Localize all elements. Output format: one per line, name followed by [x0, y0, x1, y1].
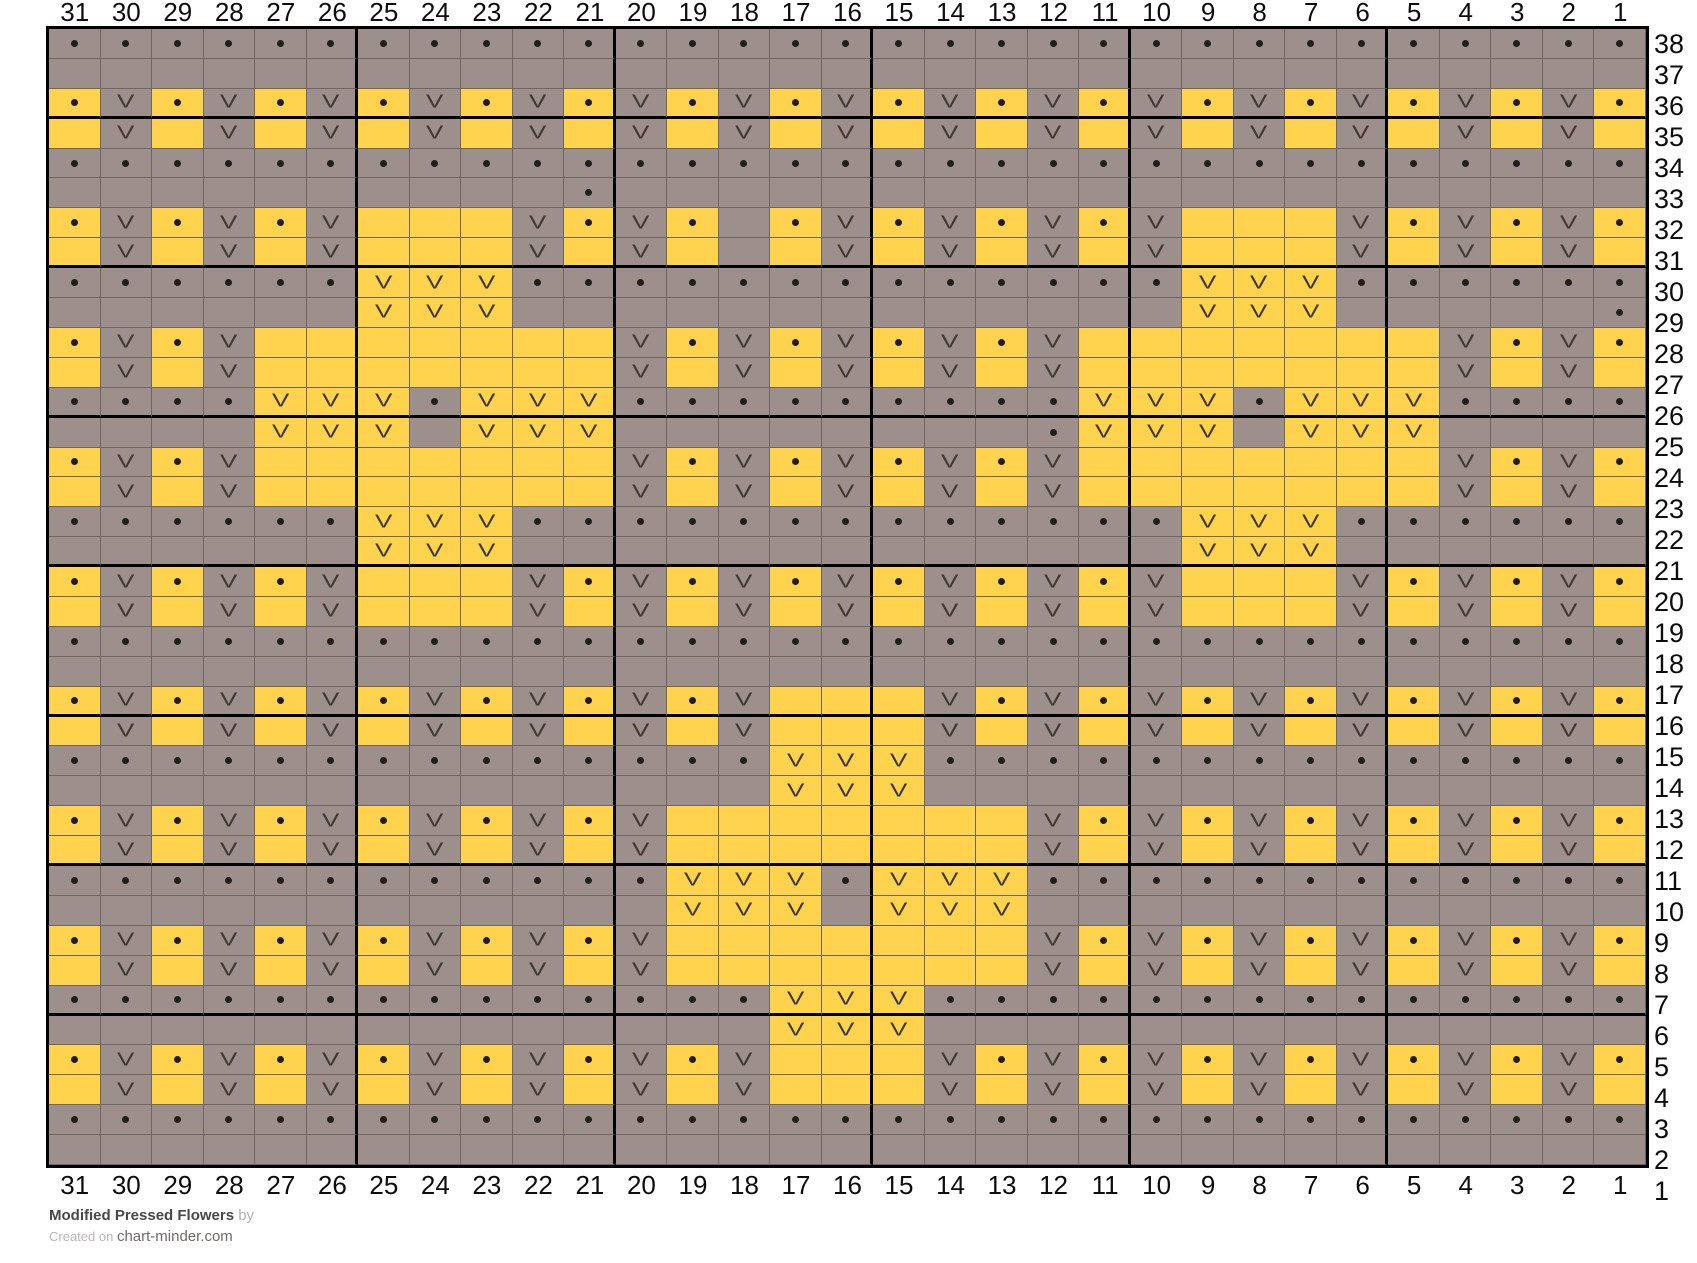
- chart-cell-c5-r35[interactable]: [1388, 119, 1440, 149]
- chart-cell-c31-r29[interactable]: [49, 298, 101, 328]
- chart-cell-c31-r5[interactable]: [49, 1016, 101, 1046]
- chart-cell-c24-r3[interactable]: V: [410, 1075, 462, 1105]
- chart-cell-c8-r2[interactable]: [1234, 1105, 1286, 1135]
- chart-cell-c23-r6[interactable]: [461, 986, 513, 1016]
- chart-cell-c16-r30[interactable]: [822, 268, 874, 298]
- chart-cell-c31-r3[interactable]: [49, 1075, 101, 1105]
- chart-cell-c23-r33[interactable]: [461, 178, 513, 208]
- chart-cell-c25-r1[interactable]: [358, 1135, 410, 1165]
- chart-cell-c21-r28[interactable]: [564, 328, 616, 358]
- chart-cell-c12-r30[interactable]: [1028, 268, 1080, 298]
- chart-cell-c22-r24[interactable]: [513, 448, 565, 478]
- chart-cell-c31-r28[interactable]: [49, 328, 101, 358]
- chart-cell-c5-r9[interactable]: [1388, 896, 1440, 926]
- chart-cell-c1-r4[interactable]: [1594, 1045, 1646, 1075]
- chart-cell-c8-r37[interactable]: [1234, 59, 1286, 89]
- chart-cell-c9-r3[interactable]: [1182, 1075, 1234, 1105]
- chart-cell-c31-r38[interactable]: [49, 29, 101, 59]
- chart-cell-c18-r26[interactable]: [719, 388, 771, 418]
- chart-cell-c27-r37[interactable]: [255, 59, 307, 89]
- chart-cell-c24-r34[interactable]: [410, 149, 462, 179]
- chart-cell-c13-r37[interactable]: [976, 59, 1028, 89]
- chart-cell-c16-r12[interactable]: [822, 806, 874, 836]
- chart-cell-c20-r18[interactable]: [616, 627, 668, 657]
- chart-cell-c22-r7[interactable]: V: [513, 956, 565, 986]
- chart-cell-c19-r5[interactable]: [667, 1016, 719, 1046]
- chart-cell-c25-r16[interactable]: [358, 687, 410, 717]
- chart-cell-c27-r18[interactable]: [255, 627, 307, 657]
- chart-cell-c19-r2[interactable]: [667, 1105, 719, 1135]
- chart-cell-c15-r31[interactable]: [873, 238, 925, 268]
- chart-cell-c21-r36[interactable]: [564, 89, 616, 119]
- chart-cell-c24-r32[interactable]: [410, 208, 462, 238]
- chart-cell-c6-r24[interactable]: [1337, 448, 1389, 478]
- chart-cell-c31-r7[interactable]: [49, 956, 101, 986]
- chart-cell-c25-r29[interactable]: V: [358, 298, 410, 328]
- chart-cell-c10-r38[interactable]: [1131, 29, 1183, 59]
- chart-cell-c8-r38[interactable]: [1234, 29, 1286, 59]
- chart-cell-c18-r31[interactable]: [719, 238, 771, 268]
- chart-cell-c15-r4[interactable]: [873, 1045, 925, 1075]
- chart-cell-c10-r25[interactable]: V: [1131, 418, 1183, 448]
- chart-cell-c11-r18[interactable]: [1079, 627, 1131, 657]
- chart-cell-c12-r29[interactable]: [1028, 298, 1080, 328]
- chart-cell-c9-r14[interactable]: [1182, 746, 1234, 776]
- chart-cell-c26-r14[interactable]: [307, 746, 359, 776]
- chart-cell-c25-r13[interactable]: [358, 776, 410, 806]
- chart-cell-c4-r35[interactable]: V: [1440, 119, 1492, 149]
- chart-cell-c7-r2[interactable]: [1285, 1105, 1337, 1135]
- chart-cell-c5-r6[interactable]: [1388, 986, 1440, 1016]
- chart-cell-c21-r6[interactable]: [564, 986, 616, 1016]
- chart-cell-c14-r22[interactable]: [925, 507, 977, 537]
- chart-cell-c12-r3[interactable]: V: [1028, 1075, 1080, 1105]
- chart-cell-c12-r16[interactable]: V: [1028, 687, 1080, 717]
- chart-cell-c26-r19[interactable]: V: [307, 597, 359, 627]
- chart-cell-c4-r37[interactable]: [1440, 59, 1492, 89]
- chart-cell-c4-r7[interactable]: V: [1440, 956, 1492, 986]
- chart-cell-c4-r26[interactable]: [1440, 388, 1492, 418]
- chart-cell-c1-r26[interactable]: [1594, 388, 1646, 418]
- chart-cell-c6-r10[interactable]: [1337, 866, 1389, 896]
- chart-cell-c30-r15[interactable]: V: [101, 717, 153, 747]
- chart-cell-c29-r33[interactable]: [152, 178, 204, 208]
- chart-cell-c15-r36[interactable]: [873, 89, 925, 119]
- chart-cell-c7-r34[interactable]: [1285, 149, 1337, 179]
- chart-cell-c30-r30[interactable]: [101, 268, 153, 298]
- chart-cell-c26-r34[interactable]: [307, 149, 359, 179]
- chart-cell-c31-r34[interactable]: [49, 149, 101, 179]
- chart-cell-c16-r26[interactable]: [822, 388, 874, 418]
- chart-cell-c9-r32[interactable]: [1182, 208, 1234, 238]
- chart-cell-c7-r19[interactable]: [1285, 597, 1337, 627]
- chart-cell-c11-r14[interactable]: [1079, 746, 1131, 776]
- chart-cell-c15-r27[interactable]: [873, 358, 925, 388]
- chart-cell-c19-r32[interactable]: [667, 208, 719, 238]
- chart-cell-c11-r8[interactable]: [1079, 926, 1131, 956]
- chart-cell-c18-r25[interactable]: [719, 418, 771, 448]
- chart-cell-c18-r28[interactable]: V: [719, 328, 771, 358]
- chart-cell-c14-r18[interactable]: [925, 627, 977, 657]
- chart-cell-c9-r31[interactable]: [1182, 238, 1234, 268]
- chart-cell-c30-r7[interactable]: V: [101, 956, 153, 986]
- chart-cell-c25-r12[interactable]: [358, 806, 410, 836]
- chart-cell-c23-r29[interactable]: V: [461, 298, 513, 328]
- chart-cell-c9-r28[interactable]: [1182, 328, 1234, 358]
- chart-cell-c14-r1[interactable]: [925, 1135, 977, 1165]
- chart-cell-c21-r26[interactable]: V: [564, 388, 616, 418]
- chart-cell-c20-r8[interactable]: V: [616, 926, 668, 956]
- chart-cell-c9-r24[interactable]: [1182, 448, 1234, 478]
- chart-cell-c27-r36[interactable]: [255, 89, 307, 119]
- chart-cell-c18-r19[interactable]: V: [719, 597, 771, 627]
- chart-cell-c6-r23[interactable]: [1337, 477, 1389, 507]
- chart-cell-c22-r17[interactable]: [513, 657, 565, 687]
- chart-cell-c12-r38[interactable]: [1028, 29, 1080, 59]
- chart-cell-c13-r21[interactable]: [976, 537, 1028, 567]
- chart-cell-c16-r28[interactable]: V: [822, 328, 874, 358]
- chart-cell-c15-r20[interactable]: [873, 567, 925, 597]
- chart-cell-c11-r13[interactable]: [1079, 776, 1131, 806]
- chart-cell-c27-r14[interactable]: [255, 746, 307, 776]
- chart-cell-c7-r4[interactable]: [1285, 1045, 1337, 1075]
- chart-cell-c28-r35[interactable]: V: [204, 119, 256, 149]
- chart-cell-c19-r18[interactable]: [667, 627, 719, 657]
- chart-cell-c2-r20[interactable]: V: [1543, 567, 1595, 597]
- chart-cell-c26-r12[interactable]: V: [307, 806, 359, 836]
- chart-cell-c7-r18[interactable]: [1285, 627, 1337, 657]
- chart-cell-c3-r6[interactable]: [1491, 986, 1543, 1016]
- chart-cell-c30-r11[interactable]: V: [101, 836, 153, 866]
- chart-cell-c18-r37[interactable]: [719, 59, 771, 89]
- chart-cell-c10-r3[interactable]: V: [1131, 1075, 1183, 1105]
- chart-cell-c12-r6[interactable]: [1028, 986, 1080, 1016]
- chart-cell-c30-r4[interactable]: V: [101, 1045, 153, 1075]
- chart-cell-c6-r21[interactable]: [1337, 537, 1389, 567]
- chart-cell-c15-r34[interactable]: [873, 149, 925, 179]
- chart-cell-c12-r28[interactable]: V: [1028, 328, 1080, 358]
- chart-cell-c2-r38[interactable]: [1543, 29, 1595, 59]
- chart-cell-c20-r14[interactable]: [616, 746, 668, 776]
- chart-cell-c22-r30[interactable]: [513, 268, 565, 298]
- chart-cell-c22-r2[interactable]: [513, 1105, 565, 1135]
- chart-cell-c7-r6[interactable]: [1285, 986, 1337, 1016]
- chart-cell-c19-r14[interactable]: [667, 746, 719, 776]
- chart-cell-c28-r4[interactable]: V: [204, 1045, 256, 1075]
- chart-cell-c18-r12[interactable]: [719, 806, 771, 836]
- chart-cell-c23-r11[interactable]: [461, 836, 513, 866]
- chart-cell-c14-r5[interactable]: [925, 1016, 977, 1046]
- chart-cell-c1-r16[interactable]: [1594, 687, 1646, 717]
- chart-cell-c11-r37[interactable]: [1079, 59, 1131, 89]
- chart-cell-c22-r37[interactable]: [513, 59, 565, 89]
- chart-cell-c29-r3[interactable]: [152, 1075, 204, 1105]
- chart-cell-c9-r8[interactable]: [1182, 926, 1234, 956]
- chart-cell-c4-r4[interactable]: V: [1440, 1045, 1492, 1075]
- chart-cell-c30-r25[interactable]: [101, 418, 153, 448]
- chart-cell-c1-r9[interactable]: [1594, 896, 1646, 926]
- chart-cell-c22-r23[interactable]: [513, 477, 565, 507]
- chart-cell-c25-r27[interactable]: [358, 358, 410, 388]
- chart-cell-c18-r11[interactable]: [719, 836, 771, 866]
- chart-cell-c29-r37[interactable]: [152, 59, 204, 89]
- chart-cell-c27-r4[interactable]: [255, 1045, 307, 1075]
- chart-cell-c11-r9[interactable]: [1079, 896, 1131, 926]
- chart-cell-c23-r2[interactable]: [461, 1105, 513, 1135]
- chart-cell-c24-r37[interactable]: [410, 59, 462, 89]
- chart-cell-c7-r25[interactable]: V: [1285, 418, 1337, 448]
- chart-cell-c1-r12[interactable]: [1594, 806, 1646, 836]
- chart-cell-c10-r22[interactable]: [1131, 507, 1183, 537]
- chart-cell-c30-r27[interactable]: V: [101, 358, 153, 388]
- chart-cell-c13-r10[interactable]: V: [976, 866, 1028, 896]
- chart-cell-c8-r19[interactable]: [1234, 597, 1286, 627]
- chart-cell-c20-r38[interactable]: [616, 29, 668, 59]
- chart-cell-c14-r26[interactable]: [925, 388, 977, 418]
- chart-cell-c8-r24[interactable]: [1234, 448, 1286, 478]
- chart-cell-c5-r18[interactable]: [1388, 627, 1440, 657]
- chart-cell-c9-r17[interactable]: [1182, 657, 1234, 687]
- chart-cell-c31-r36[interactable]: [49, 89, 101, 119]
- chart-cell-c29-r8[interactable]: [152, 926, 204, 956]
- chart-cell-c3-r8[interactable]: [1491, 926, 1543, 956]
- chart-cell-c26-r22[interactable]: [307, 507, 359, 537]
- chart-cell-c24-r7[interactable]: V: [410, 956, 462, 986]
- chart-cell-c13-r12[interactable]: [976, 806, 1028, 836]
- chart-cell-c5-r31[interactable]: [1388, 238, 1440, 268]
- chart-cell-c7-r33[interactable]: [1285, 178, 1337, 208]
- chart-cell-c28-r6[interactable]: [204, 986, 256, 1016]
- chart-cell-c16-r31[interactable]: V: [822, 238, 874, 268]
- chart-cell-c1-r35[interactable]: [1594, 119, 1646, 149]
- chart-cell-c21-r33[interactable]: [564, 178, 616, 208]
- chart-cell-c9-r7[interactable]: [1182, 956, 1234, 986]
- chart-cell-c16-r8[interactable]: [822, 926, 874, 956]
- chart-cell-c16-r3[interactable]: [822, 1075, 874, 1105]
- chart-cell-c22-r5[interactable]: [513, 1016, 565, 1046]
- chart-cell-c22-r38[interactable]: [513, 29, 565, 59]
- chart-cell-c24-r6[interactable]: [410, 986, 462, 1016]
- chart-cell-c8-r22[interactable]: V: [1234, 507, 1286, 537]
- chart-cell-c24-r14[interactable]: [410, 746, 462, 776]
- chart-cell-c18-r13[interactable]: [719, 776, 771, 806]
- chart-cell-c30-r1[interactable]: [101, 1135, 153, 1165]
- chart-cell-c13-r38[interactable]: [976, 29, 1028, 59]
- chart-cell-c12-r15[interactable]: V: [1028, 717, 1080, 747]
- chart-cell-c28-r26[interactable]: [204, 388, 256, 418]
- chart-cell-c4-r10[interactable]: [1440, 866, 1492, 896]
- chart-cell-c17-r12[interactable]: [770, 806, 822, 836]
- chart-cell-c11-r20[interactable]: [1079, 567, 1131, 597]
- chart-cell-c20-r31[interactable]: V: [616, 238, 668, 268]
- chart-cell-c12-r2[interactable]: [1028, 1105, 1080, 1135]
- chart-cell-c21-r31[interactable]: [564, 238, 616, 268]
- chart-cell-c2-r16[interactable]: V: [1543, 687, 1595, 717]
- chart-cell-c4-r8[interactable]: V: [1440, 926, 1492, 956]
- chart-cell-c12-r1[interactable]: [1028, 1135, 1080, 1165]
- chart-cell-c13-r23[interactable]: [976, 477, 1028, 507]
- chart-cell-c7-r8[interactable]: [1285, 926, 1337, 956]
- chart-cell-c28-r16[interactable]: V: [204, 687, 256, 717]
- chart-cell-c27-r6[interactable]: [255, 986, 307, 1016]
- chart-cell-c26-r3[interactable]: V: [307, 1075, 359, 1105]
- chart-cell-c11-r28[interactable]: [1079, 328, 1131, 358]
- chart-cell-c29-r29[interactable]: [152, 298, 204, 328]
- chart-cell-c19-r1[interactable]: [667, 1135, 719, 1165]
- chart-cell-c13-r8[interactable]: [976, 926, 1028, 956]
- chart-cell-c7-r15[interactable]: [1285, 717, 1337, 747]
- chart-cell-c29-r24[interactable]: [152, 448, 204, 478]
- chart-cell-c25-r15[interactable]: [358, 717, 410, 747]
- chart-cell-c31-r25[interactable]: [49, 418, 101, 448]
- chart-cell-c9-r13[interactable]: [1182, 776, 1234, 806]
- chart-cell-c8-r9[interactable]: [1234, 896, 1286, 926]
- chart-cell-c27-r25[interactable]: V: [255, 418, 307, 448]
- chart-cell-c20-r29[interactable]: [616, 298, 668, 328]
- chart-cell-c17-r7[interactable]: [770, 956, 822, 986]
- chart-cell-c1-r29[interactable]: [1594, 298, 1646, 328]
- chart-cell-c24-r33[interactable]: [410, 178, 462, 208]
- chart-cell-c18-r34[interactable]: [719, 149, 771, 179]
- chart-cell-c29-r15[interactable]: [152, 717, 204, 747]
- chart-cell-c31-r20[interactable]: [49, 567, 101, 597]
- chart-cell-c26-r11[interactable]: V: [307, 836, 359, 866]
- chart-cell-c13-r29[interactable]: [976, 298, 1028, 328]
- chart-cell-c19-r19[interactable]: [667, 597, 719, 627]
- chart-cell-c9-r26[interactable]: V: [1182, 388, 1234, 418]
- chart-cell-c21-r11[interactable]: [564, 836, 616, 866]
- chart-cell-c19-r11[interactable]: [667, 836, 719, 866]
- chart-cell-c28-r28[interactable]: V: [204, 328, 256, 358]
- chart-cell-c1-r36[interactable]: [1594, 89, 1646, 119]
- chart-cell-c26-r29[interactable]: [307, 298, 359, 328]
- chart-cell-c24-r5[interactable]: [410, 1016, 462, 1046]
- chart-cell-c14-r33[interactable]: [925, 178, 977, 208]
- chart-cell-c5-r15[interactable]: [1388, 717, 1440, 747]
- chart-cell-c26-r4[interactable]: V: [307, 1045, 359, 1075]
- chart-cell-c3-r1[interactable]: [1491, 1135, 1543, 1165]
- chart-cell-c15-r38[interactable]: [873, 29, 925, 59]
- chart-cell-c6-r4[interactable]: V: [1337, 1045, 1389, 1075]
- chart-cell-c23-r31[interactable]: [461, 238, 513, 268]
- chart-cell-c13-r2[interactable]: [976, 1105, 1028, 1135]
- chart-cell-c10-r10[interactable]: [1131, 866, 1183, 896]
- chart-cell-c11-r38[interactable]: [1079, 29, 1131, 59]
- chart-cell-c2-r12[interactable]: V: [1543, 806, 1595, 836]
- chart-cell-c12-r5[interactable]: [1028, 1016, 1080, 1046]
- chart-cell-c27-r5[interactable]: [255, 1016, 307, 1046]
- chart-cell-c3-r15[interactable]: [1491, 717, 1543, 747]
- chart-cell-c20-r32[interactable]: V: [616, 208, 668, 238]
- chart-cell-c5-r16[interactable]: [1388, 687, 1440, 717]
- chart-cell-c29-r2[interactable]: [152, 1105, 204, 1135]
- chart-cell-c9-r36[interactable]: [1182, 89, 1234, 119]
- chart-cell-c11-r33[interactable]: [1079, 178, 1131, 208]
- chart-cell-c11-r4[interactable]: [1079, 1045, 1131, 1075]
- chart-cell-c13-r9[interactable]: V: [976, 896, 1028, 926]
- chart-cell-c13-r7[interactable]: [976, 956, 1028, 986]
- chart-cell-c25-r7[interactable]: [358, 956, 410, 986]
- chart-cell-c1-r37[interactable]: [1594, 59, 1646, 89]
- chart-cell-c1-r1[interactable]: [1594, 1135, 1646, 1165]
- chart-cell-c13-r3[interactable]: [976, 1075, 1028, 1105]
- chart-cell-c12-r4[interactable]: V: [1028, 1045, 1080, 1075]
- chart-cell-c3-r3[interactable]: [1491, 1075, 1543, 1105]
- chart-cell-c18-r5[interactable]: [719, 1016, 771, 1046]
- chart-cell-c31-r4[interactable]: [49, 1045, 101, 1075]
- chart-cell-c30-r19[interactable]: V: [101, 597, 153, 627]
- chart-cell-c24-r35[interactable]: V: [410, 119, 462, 149]
- chart-cell-c9-r16[interactable]: [1182, 687, 1234, 717]
- chart-cell-c5-r37[interactable]: [1388, 59, 1440, 89]
- chart-cell-c27-r17[interactable]: [255, 657, 307, 687]
- chart-cell-c25-r34[interactable]: [358, 149, 410, 179]
- chart-cell-c22-r14[interactable]: [513, 746, 565, 776]
- chart-cell-c9-r33[interactable]: [1182, 178, 1234, 208]
- chart-cell-c18-r35[interactable]: V: [719, 119, 771, 149]
- chart-cell-c2-r30[interactable]: [1543, 268, 1595, 298]
- chart-cell-c18-r23[interactable]: V: [719, 477, 771, 507]
- chart-cell-c4-r15[interactable]: V: [1440, 717, 1492, 747]
- chart-cell-c14-r8[interactable]: [925, 926, 977, 956]
- chart-cell-c31-r37[interactable]: [49, 59, 101, 89]
- chart-cell-c30-r22[interactable]: [101, 507, 153, 537]
- chart-cell-c6-r15[interactable]: V: [1337, 717, 1389, 747]
- chart-cell-c28-r23[interactable]: V: [204, 477, 256, 507]
- chart-cell-c1-r7[interactable]: [1594, 956, 1646, 986]
- chart-cell-c6-r9[interactable]: [1337, 896, 1389, 926]
- chart-cell-c3-r30[interactable]: [1491, 268, 1543, 298]
- chart-cell-c12-r35[interactable]: V: [1028, 119, 1080, 149]
- chart-cell-c29-r17[interactable]: [152, 657, 204, 687]
- chart-cell-c23-r34[interactable]: [461, 149, 513, 179]
- chart-cell-c14-r15[interactable]: V: [925, 717, 977, 747]
- chart-cell-c20-r24[interactable]: V: [616, 448, 668, 478]
- chart-cell-c19-r30[interactable]: [667, 268, 719, 298]
- chart-cell-c3-r13[interactable]: [1491, 776, 1543, 806]
- chart-cell-c26-r13[interactable]: [307, 776, 359, 806]
- chart-cell-c14-r3[interactable]: V: [925, 1075, 977, 1105]
- chart-cell-c17-r34[interactable]: [770, 149, 822, 179]
- chart-cell-c21-r19[interactable]: [564, 597, 616, 627]
- chart-cell-c6-r31[interactable]: V: [1337, 238, 1389, 268]
- chart-cell-c17-r29[interactable]: [770, 298, 822, 328]
- chart-cell-c2-r10[interactable]: [1543, 866, 1595, 896]
- chart-cell-c7-r16[interactable]: [1285, 687, 1337, 717]
- chart-cell-c22-r4[interactable]: V: [513, 1045, 565, 1075]
- chart-cell-c15-r22[interactable]: [873, 507, 925, 537]
- chart-cell-c23-r14[interactable]: [461, 746, 513, 776]
- chart-cell-c6-r29[interactable]: [1337, 298, 1389, 328]
- chart-cell-c25-r31[interactable]: [358, 238, 410, 268]
- chart-cell-c18-r9[interactable]: V: [719, 896, 771, 926]
- chart-cell-c1-r5[interactable]: [1594, 1016, 1646, 1046]
- chart-cell-c2-r27[interactable]: V: [1543, 358, 1595, 388]
- chart-cell-c27-r10[interactable]: [255, 866, 307, 896]
- chart-cell-c1-r18[interactable]: [1594, 627, 1646, 657]
- chart-cell-c16-r11[interactable]: [822, 836, 874, 866]
- chart-cell-c5-r21[interactable]: [1388, 537, 1440, 567]
- chart-cell-c10-r19[interactable]: V: [1131, 597, 1183, 627]
- chart-cell-c21-r15[interactable]: [564, 717, 616, 747]
- chart-cell-c30-r3[interactable]: V: [101, 1075, 153, 1105]
- chart-cell-c5-r32[interactable]: [1388, 208, 1440, 238]
- chart-cell-c22-r9[interactable]: [513, 896, 565, 926]
- chart-cell-c7-r37[interactable]: [1285, 59, 1337, 89]
- chart-cell-c21-r10[interactable]: [564, 866, 616, 896]
- chart-cell-c27-r35[interactable]: [255, 119, 307, 149]
- chart-cell-c29-r18[interactable]: [152, 627, 204, 657]
